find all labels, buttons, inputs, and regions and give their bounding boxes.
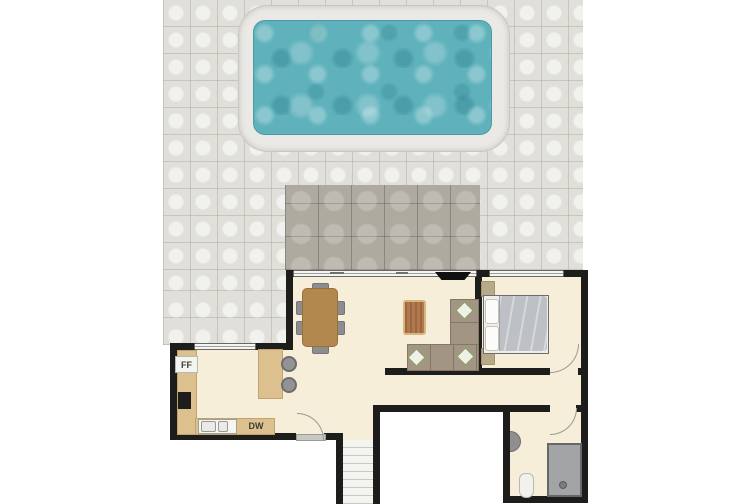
- sliding-door-handle-mark: [330, 272, 344, 274]
- fridge-freezer-label: FF: [175, 356, 198, 373]
- bar-stool-1: [281, 356, 297, 372]
- toilet: [519, 473, 534, 498]
- wall-right: [581, 270, 588, 503]
- sliding-door-handle-mark-2: [396, 272, 408, 274]
- dishwasher-label: DW: [243, 419, 269, 433]
- dishwasher-text: DW: [249, 421, 264, 431]
- terrace-dark-tiles: [285, 185, 480, 270]
- oven-hob: [178, 392, 191, 409]
- fridge-freezer-text: FF: [181, 360, 192, 370]
- dining-table: [302, 288, 338, 347]
- bed-pillow-2: [485, 326, 499, 351]
- wall-bathroom-top: [503, 405, 550, 412]
- bed-duvet: [499, 296, 547, 351]
- shower-tray: [547, 443, 582, 497]
- shower-drain: [559, 481, 567, 489]
- wall-living-left: [286, 270, 293, 350]
- wall-bedroom-bottom-stub: [578, 368, 581, 375]
- patio-tiles-left-arm: [163, 270, 286, 345]
- sink-basin-large: [201, 421, 216, 432]
- breakfast-bar: [258, 349, 283, 399]
- wall-stairwell-left: [336, 437, 343, 504]
- bar-stool-2: [281, 377, 297, 393]
- bed-pillow-1: [485, 299, 499, 324]
- kitchen-window: [195, 344, 255, 349]
- bedroom-window: [490, 271, 563, 276]
- sink-basin-small: [218, 421, 228, 432]
- wall-bathroom-left: [503, 405, 510, 503]
- wall-bedroom-bottom: [478, 368, 550, 375]
- floor-plan-canvas: FF DW: [0, 0, 755, 504]
- wall-void-top: [373, 405, 510, 412]
- wall-void-left: [373, 405, 380, 504]
- swimming-pool-water: [253, 20, 492, 135]
- wall-bathroom-bottom: [503, 496, 588, 503]
- staircase: [343, 440, 373, 504]
- coffee-table: [403, 300, 426, 335]
